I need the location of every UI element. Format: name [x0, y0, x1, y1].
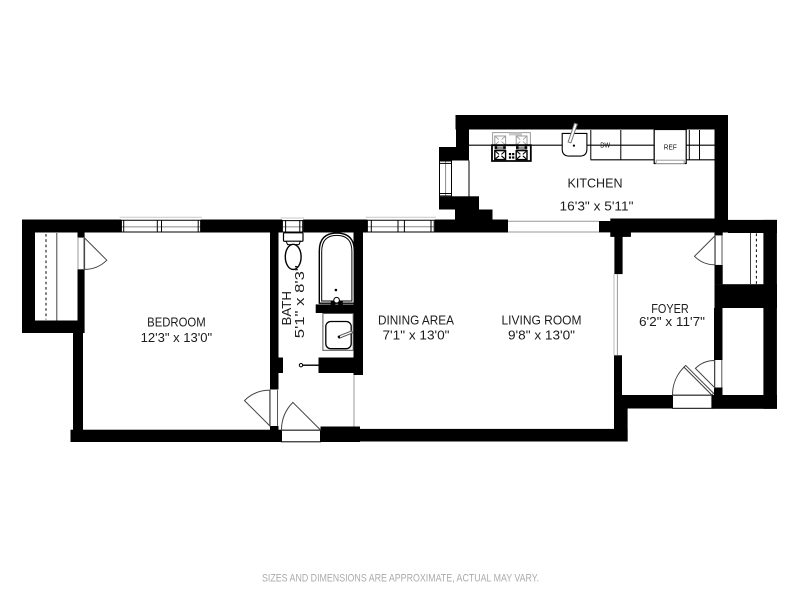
svg-text:SIZES AND DIMENSIONS ARE APPRO: SIZES AND DIMENSIONS ARE APPROXIMATE, AC… [262, 572, 539, 584]
svg-text:REF: REF [664, 144, 677, 151]
svg-text:KITCHEN: KITCHEN [568, 175, 623, 190]
svg-text:BEDROOM: BEDROOM [147, 315, 206, 330]
svg-text:LIVING ROOM: LIVING ROOM [502, 312, 582, 327]
svg-text:7'1" x 13'0": 7'1" x 13'0" [383, 328, 450, 343]
svg-text:DW: DW [600, 143, 610, 150]
svg-text:12'3" x 13'0": 12'3" x 13'0" [141, 330, 213, 345]
svg-text:16'3" x 5'11": 16'3" x 5'11" [560, 198, 634, 213]
svg-text:DINING AREA: DINING AREA [378, 312, 454, 327]
svg-text:5'1" x 8'3": 5'1" x 8'3" [292, 265, 307, 338]
svg-text:9'8" x 13'0": 9'8" x 13'0" [508, 328, 575, 343]
svg-text:6'2" x 11'7": 6'2" x 11'7" [639, 314, 705, 329]
